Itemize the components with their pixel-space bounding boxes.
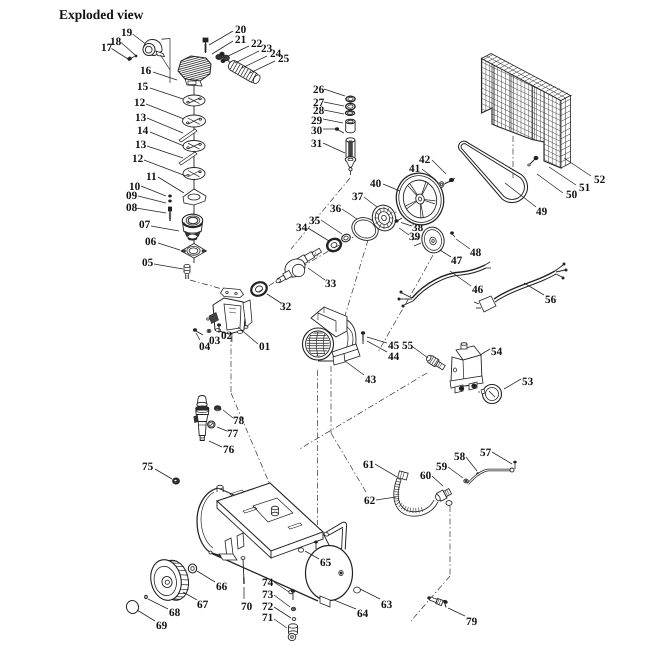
svg-text:49: 49 xyxy=(536,206,548,218)
svg-text:16: 16 xyxy=(140,65,152,77)
svg-text:07: 07 xyxy=(139,219,151,231)
svg-text:73: 73 xyxy=(262,589,274,601)
svg-text:39: 39 xyxy=(409,231,421,243)
svg-text:63: 63 xyxy=(381,599,393,611)
svg-text:Exploded view: Exploded view xyxy=(59,7,144,22)
svg-text:65: 65 xyxy=(320,557,332,569)
svg-text:34: 34 xyxy=(296,222,308,234)
svg-text:42: 42 xyxy=(419,154,431,166)
svg-text:70: 70 xyxy=(241,601,253,613)
svg-text:54: 54 xyxy=(491,346,503,358)
svg-text:02: 02 xyxy=(221,330,233,342)
svg-text:40: 40 xyxy=(370,178,382,190)
svg-text:08: 08 xyxy=(126,202,138,214)
svg-text:33: 33 xyxy=(325,278,337,290)
svg-text:55: 55 xyxy=(402,340,414,352)
svg-text:01: 01 xyxy=(259,341,271,353)
svg-text:32: 32 xyxy=(280,301,292,313)
svg-text:56: 56 xyxy=(545,294,557,306)
svg-text:37: 37 xyxy=(352,191,364,203)
svg-text:62: 62 xyxy=(364,495,376,507)
svg-text:47: 47 xyxy=(451,255,463,267)
svg-text:13: 13 xyxy=(135,139,147,151)
svg-text:64: 64 xyxy=(357,608,369,620)
svg-text:58: 58 xyxy=(454,451,466,463)
svg-text:12: 12 xyxy=(132,153,144,165)
svg-text:59: 59 xyxy=(436,461,448,473)
svg-text:52: 52 xyxy=(594,174,606,186)
svg-text:60: 60 xyxy=(420,470,432,482)
svg-text:78: 78 xyxy=(233,415,245,427)
svg-text:43: 43 xyxy=(365,374,377,386)
svg-text:35: 35 xyxy=(309,215,321,227)
svg-text:04: 04 xyxy=(199,341,211,353)
svg-text:44: 44 xyxy=(388,351,400,363)
svg-text:67: 67 xyxy=(197,599,209,611)
svg-text:05: 05 xyxy=(142,257,154,269)
svg-text:75: 75 xyxy=(142,461,154,473)
svg-text:26: 26 xyxy=(313,84,325,96)
svg-text:03: 03 xyxy=(209,335,221,347)
svg-text:14: 14 xyxy=(137,125,149,137)
svg-text:77: 77 xyxy=(227,428,239,440)
svg-text:15: 15 xyxy=(137,81,149,93)
svg-text:13: 13 xyxy=(135,112,147,124)
svg-text:36: 36 xyxy=(330,203,342,215)
svg-text:79: 79 xyxy=(466,616,478,628)
svg-text:76: 76 xyxy=(223,444,235,456)
svg-text:06: 06 xyxy=(145,236,157,248)
svg-text:12: 12 xyxy=(134,97,146,109)
svg-text:53: 53 xyxy=(522,376,534,388)
svg-text:71: 71 xyxy=(262,612,274,624)
svg-text:68: 68 xyxy=(169,607,181,619)
svg-text:57: 57 xyxy=(480,447,492,459)
svg-text:25: 25 xyxy=(278,53,290,65)
svg-text:21: 21 xyxy=(235,34,247,46)
svg-text:69: 69 xyxy=(156,620,168,632)
svg-text:31: 31 xyxy=(311,138,323,150)
svg-text:50: 50 xyxy=(566,189,578,201)
svg-text:09: 09 xyxy=(126,190,138,202)
svg-text:61: 61 xyxy=(363,459,375,471)
svg-text:11: 11 xyxy=(146,171,157,183)
svg-text:74: 74 xyxy=(262,577,274,589)
svg-text:66: 66 xyxy=(216,581,228,593)
svg-text:30: 30 xyxy=(311,125,323,137)
svg-text:51: 51 xyxy=(579,182,591,194)
svg-text:17: 17 xyxy=(101,42,113,54)
svg-text:48: 48 xyxy=(470,247,482,259)
svg-text:46: 46 xyxy=(472,284,484,296)
svg-text:19: 19 xyxy=(121,27,133,39)
